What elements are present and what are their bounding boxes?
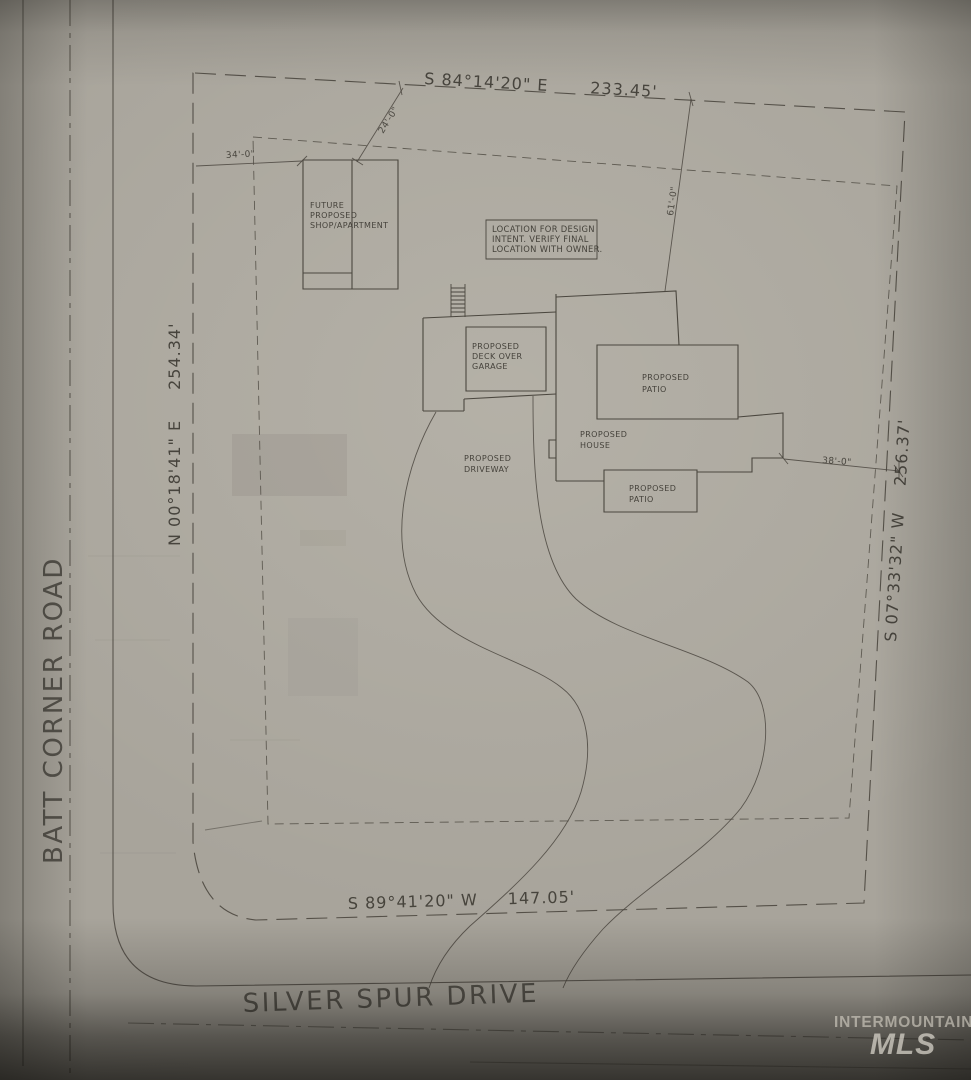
dim-38: 38'-0" <box>822 456 852 468</box>
patio-upper-outline <box>597 345 738 419</box>
deck-label: PROPOSED DECK OVER GARAGE <box>472 342 522 371</box>
south-boundary-label: S 89°41'20" W147.05' <box>348 887 576 913</box>
driveway-label: PROPOSED DRIVEWAY <box>464 454 511 474</box>
dim-61: 61'-0" <box>666 186 680 217</box>
svg-text:PROPOSED: PROPOSED <box>629 484 676 493</box>
north-boundary-label: S 84°14'20" E233.45' <box>424 69 658 101</box>
svg-text:PROPOSED: PROPOSED <box>642 373 689 382</box>
road-south-edge <box>470 1062 971 1069</box>
site-plan-drawing: S 84°14'20" E233.45' N 00°18'41" E254.34… <box>0 0 971 1080</box>
svg-text:GARAGE: GARAGE <box>472 362 508 371</box>
svg-text:FUTURE: FUTURE <box>310 201 344 210</box>
property-boundary <box>193 73 905 920</box>
batt-corner-road-name: BATT CORNER ROAD <box>39 556 69 864</box>
silver-spur-drive-lines <box>128 1023 971 1069</box>
shop-label: FUTURE PROPOSED SHOP/APARTMENT <box>310 201 388 230</box>
road-centerline-south <box>128 1023 971 1040</box>
dim-24: 24'-0" <box>377 105 401 135</box>
setback-connector <box>205 821 262 830</box>
west-boundary-label: N 00°18'41" E254.34' <box>165 323 184 546</box>
paper-bleedthrough-marks <box>88 434 358 853</box>
svg-text:HOUSE: HOUSE <box>580 441 610 450</box>
svg-text:DRIVEWAY: DRIVEWAY <box>464 465 509 474</box>
svg-text:LOCATION FOR DESIGN: LOCATION FOR DESIGN <box>492 224 595 234</box>
svg-text:INTENT. VERIFY FINAL: INTENT. VERIFY FINAL <box>492 234 589 244</box>
patio-lower-label: PROPOSED PATIO <box>629 484 676 504</box>
site-plan-scan: S 84°14'20" E233.45' N 00°18'41" E254.34… <box>0 0 971 1080</box>
svg-text:PATIO: PATIO <box>629 495 654 504</box>
svg-text:PROPOSED: PROPOSED <box>464 454 511 463</box>
stairs <box>451 284 465 317</box>
svg-text:SHOP/APARTMENT: SHOP/APARTMENT <box>310 221 388 230</box>
east-boundary-label: S 07°33'32" W256.37' <box>881 418 914 642</box>
house-label: PROPOSED HOUSE <box>580 430 627 450</box>
svg-text:PATIO: PATIO <box>642 385 667 394</box>
svg-text:LOCATION WITH OWNER.: LOCATION WITH OWNER. <box>492 244 602 254</box>
svg-text:DECK OVER: DECK OVER <box>472 352 522 361</box>
design-note: LOCATION FOR DESIGN INTENT. VERIFY FINAL… <box>492 224 602 254</box>
patio-upper-label: PROPOSED PATIO <box>642 373 689 394</box>
dim-34: 34'-0" <box>226 149 256 161</box>
svg-text:PROPOSED: PROPOSED <box>310 211 357 220</box>
svg-text:PROPOSED: PROPOSED <box>580 430 627 439</box>
svg-text:PROPOSED: PROPOSED <box>472 342 519 351</box>
